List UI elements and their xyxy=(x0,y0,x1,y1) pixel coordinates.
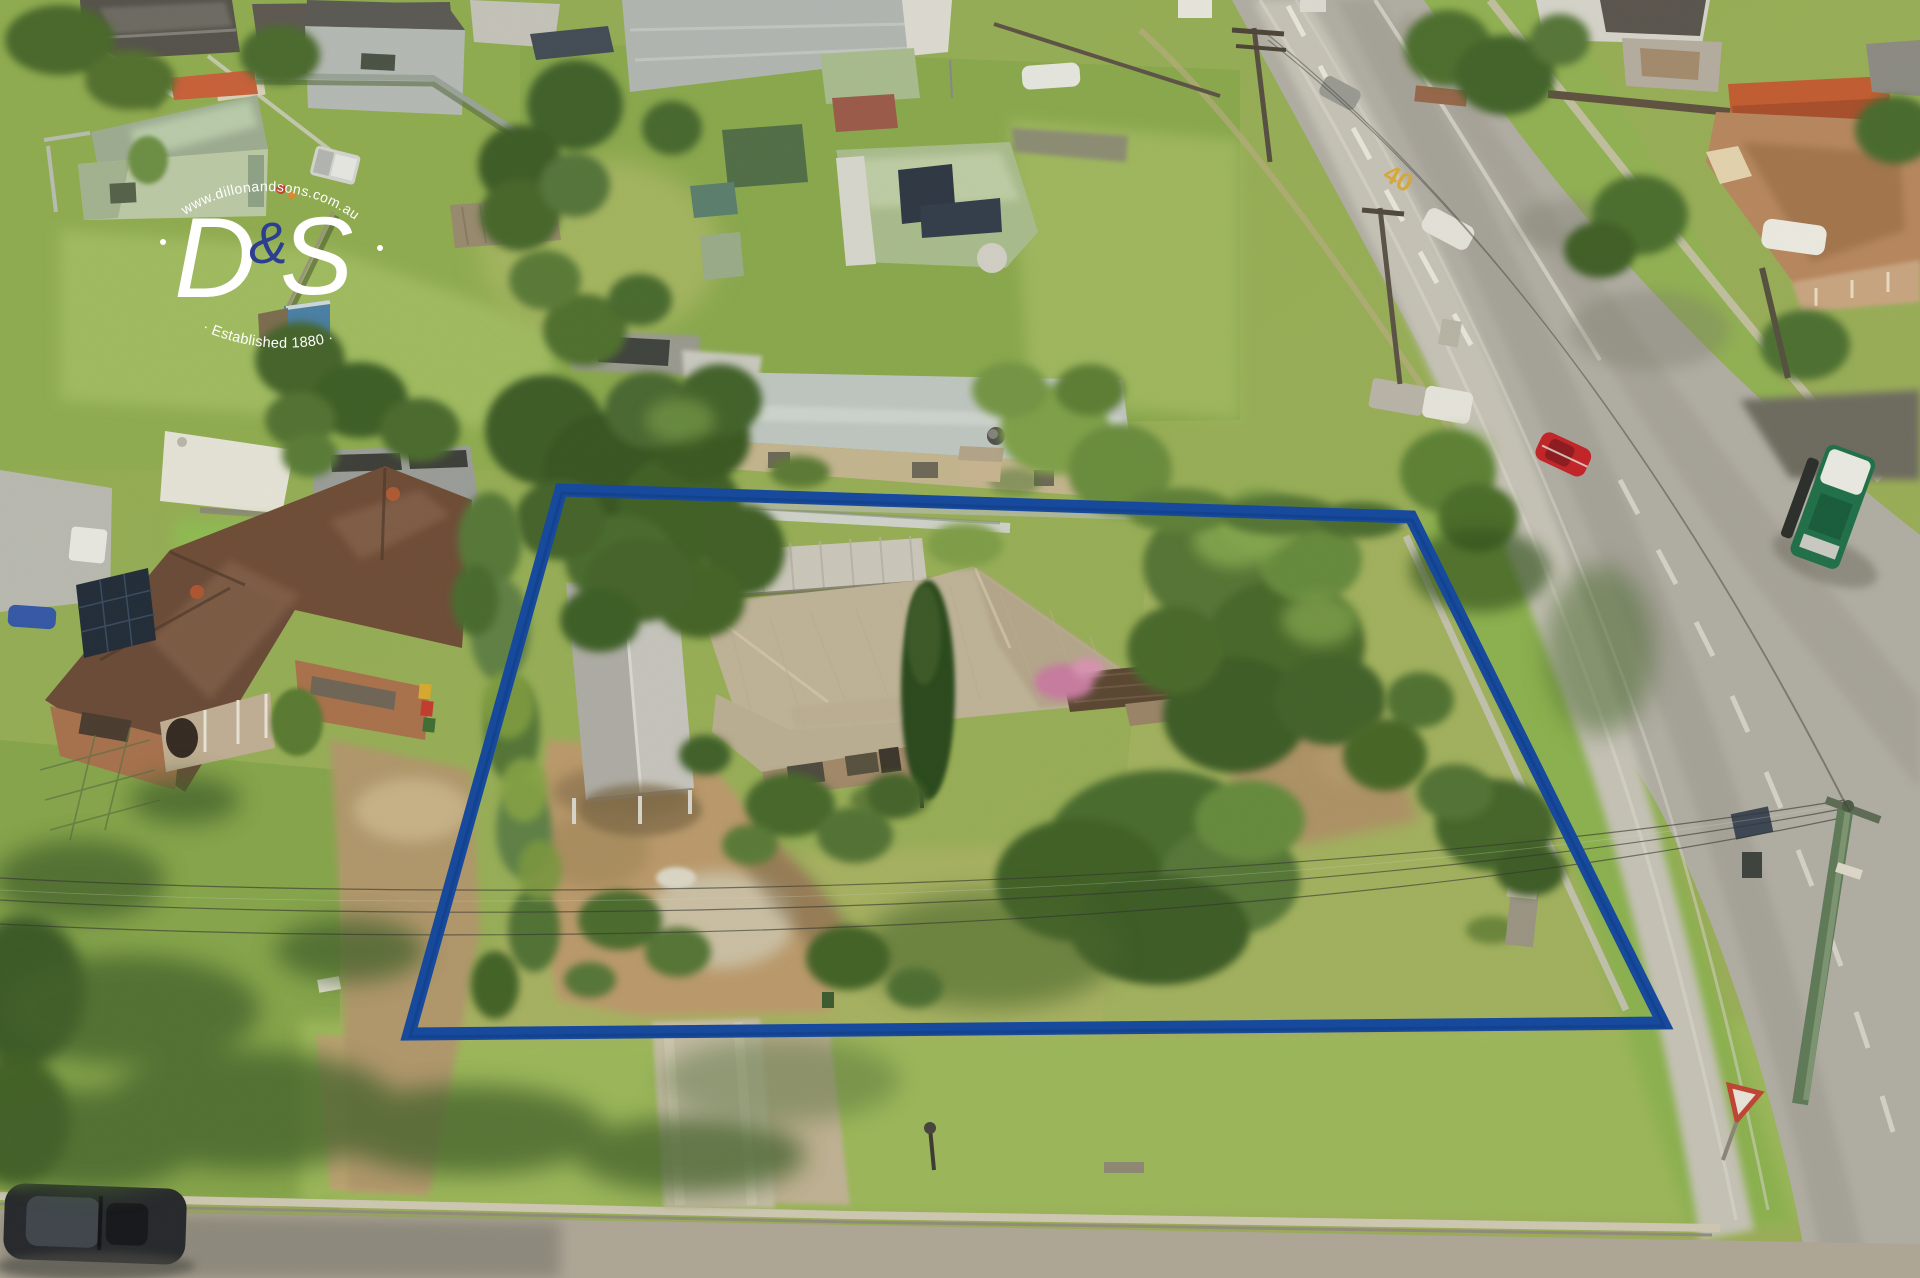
svg-text:S: S xyxy=(280,195,353,318)
svg-text:D: D xyxy=(174,195,256,322)
